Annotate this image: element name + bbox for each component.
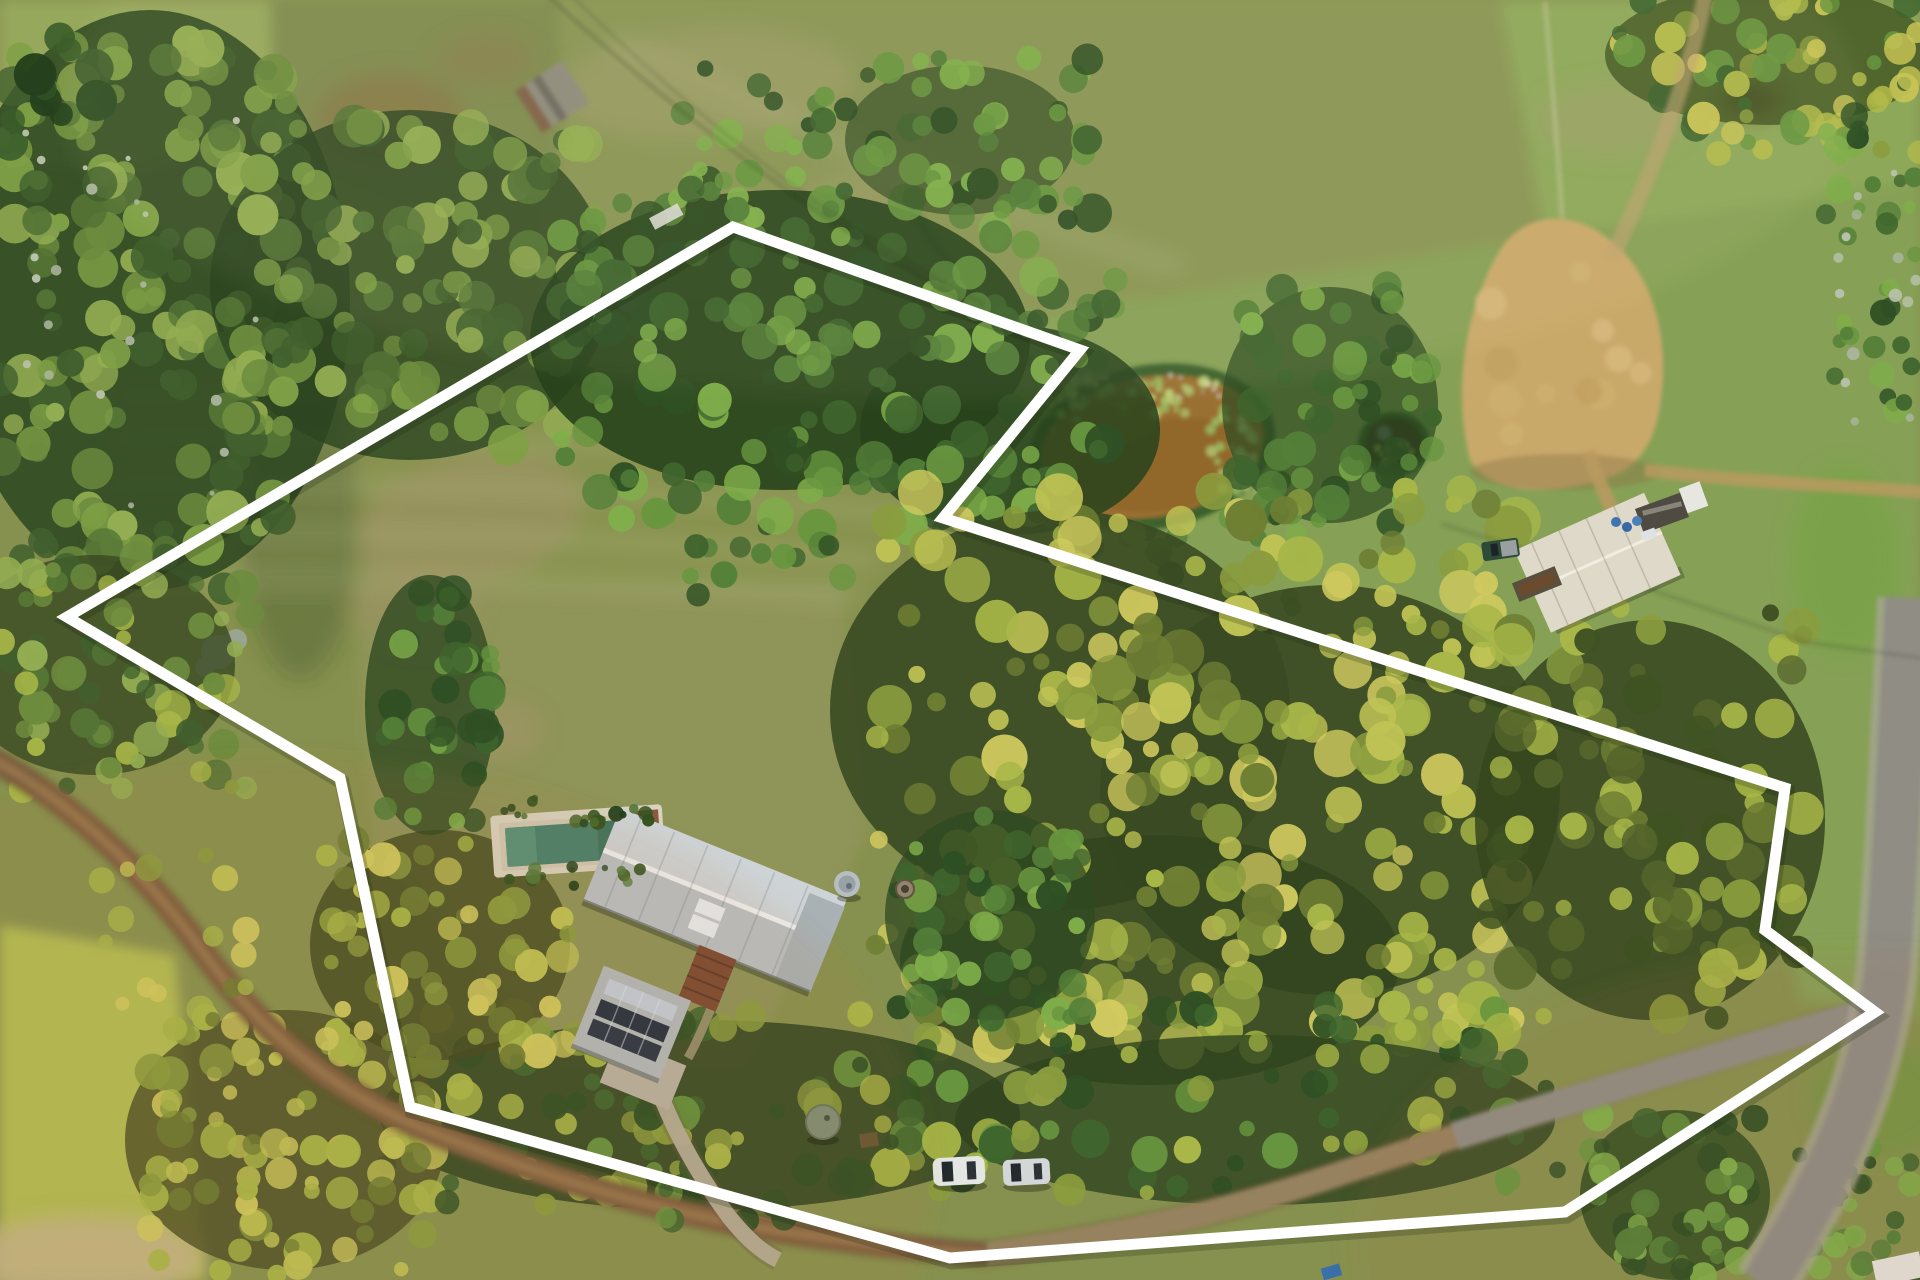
tree-canopy — [1174, 407, 1180, 413]
tree-canopy — [620, 469, 638, 487]
tree-canopy — [1265, 700, 1290, 725]
tree-canopy — [1865, 176, 1881, 192]
tree-canopy — [1902, 296, 1913, 307]
tree-canopy — [1188, 1075, 1214, 1101]
tree-canopy — [1574, 628, 1599, 653]
tree-canopy — [1406, 615, 1426, 635]
tree-canopy — [70, 564, 96, 590]
tree-canopy — [1358, 400, 1380, 422]
tree-canopy — [1622, 824, 1658, 860]
tree-canopy — [1847, 347, 1860, 360]
tree-canopy — [898, 604, 921, 627]
tree-canopy — [1365, 828, 1396, 859]
tree-canopy — [905, 984, 938, 1017]
tree-canopy — [1148, 938, 1176, 966]
tree-canopy — [1318, 1108, 1339, 1129]
tree-canopy — [1056, 624, 1084, 652]
tree-canopy — [281, 334, 310, 363]
tree-canopy — [1869, 362, 1895, 388]
tree-canopy — [898, 470, 943, 515]
tree-canopy — [984, 952, 1014, 982]
tree-canopy — [1281, 854, 1298, 871]
tree-canopy — [1755, 699, 1795, 739]
tree-canopy — [1117, 954, 1135, 972]
tree-canopy — [44, 23, 75, 54]
tree-canopy — [822, 400, 856, 434]
tree-canopy — [86, 184, 97, 195]
tree-canopy — [1467, 960, 1484, 977]
tree-canopy — [870, 831, 888, 849]
tree-canopy — [1062, 1009, 1078, 1025]
tree-canopy — [1876, 212, 1898, 234]
tree-canopy — [37, 156, 46, 165]
tree-canopy — [1394, 1019, 1416, 1041]
tree-canopy — [1706, 823, 1744, 861]
tree-canopy — [1264, 1068, 1280, 1084]
tree-canopy — [1352, 384, 1368, 400]
tree-canopy — [942, 998, 970, 1026]
tree-canopy — [1006, 658, 1025, 677]
tree-canopy — [1264, 439, 1296, 471]
tree-canopy — [14, 53, 57, 96]
tree-canopy — [1291, 467, 1313, 489]
fire-pit-center — [901, 885, 909, 893]
tree-canopy — [1392, 845, 1412, 865]
tree-canopy — [70, 708, 99, 737]
tree-canopy — [272, 416, 293, 437]
tree-canopy — [1896, 394, 1913, 411]
tree-canopy — [1505, 815, 1534, 844]
tree-canopy — [1022, 446, 1040, 464]
tree-canopy — [17, 640, 48, 671]
tree-canopy — [1494, 946, 1538, 990]
tree-canopy — [45, 562, 60, 577]
tree-canopy — [1872, 86, 1893, 107]
tree-canopy — [1191, 803, 1208, 820]
tree-canopy — [1212, 909, 1240, 937]
tree-canopy — [1206, 425, 1216, 435]
tree-canopy — [1178, 396, 1180, 398]
tree-canopy — [1090, 999, 1128, 1037]
tree-canopy — [1121, 702, 1160, 741]
tree-canopy — [979, 1006, 1004, 1031]
tree-canopy — [1238, 743, 1259, 764]
tree-canopy — [1484, 346, 1519, 381]
tree-canopy — [1329, 1015, 1357, 1043]
tree-canopy — [1903, 357, 1920, 375]
tree-canopy — [1420, 871, 1448, 899]
tree-canopy — [1548, 915, 1584, 951]
tree-canopy — [1325, 787, 1362, 824]
tree-canopy — [1160, 403, 1169, 412]
tree-canopy — [22, 130, 29, 137]
tree-canopy — [970, 682, 996, 708]
tree-canopy — [516, 390, 549, 423]
tree-canopy — [1378, 991, 1410, 1023]
tree-canopy — [1684, 716, 1715, 747]
tree-canopy — [134, 722, 169, 757]
tree-canopy — [220, 448, 229, 457]
tree-canopy — [1089, 803, 1109, 823]
tree-canopy — [1630, 362, 1652, 384]
tree-canopy — [684, 534, 708, 558]
tree-canopy — [642, 814, 654, 826]
tree-canopy — [214, 611, 229, 626]
tree-canopy — [1034, 1066, 1067, 1099]
tree-canopy — [1109, 514, 1128, 533]
tree-canopy — [416, 604, 435, 623]
tree-canopy — [51, 265, 62, 276]
tree-canopy — [1067, 662, 1093, 688]
tree-canopy — [572, 416, 603, 447]
tree-canopy — [1622, 675, 1662, 715]
tree-canopy — [866, 726, 889, 749]
tree-canopy — [1867, 55, 1882, 70]
tree-canopy — [30, 253, 38, 261]
tree-canopy — [1185, 556, 1205, 576]
tree-canopy — [1605, 345, 1632, 372]
tree-canopy — [40, 702, 60, 722]
tree-canopy — [1816, 204, 1836, 224]
tree-canopy — [1217, 394, 1220, 397]
tree-canopy — [608, 505, 635, 532]
tree-canopy — [215, 297, 245, 327]
tree-canopy — [425, 716, 456, 747]
tree-canopy — [1699, 877, 1724, 902]
tree-canopy — [1574, 377, 1602, 405]
tree-canopy — [1262, 1133, 1298, 1169]
tree-canopy — [363, 351, 401, 389]
tree-canopy — [18, 591, 34, 607]
tree-canopy — [1893, 252, 1904, 263]
tree-canopy — [1536, 385, 1555, 404]
tree-canopy — [942, 851, 966, 875]
tree-canopy — [1140, 1185, 1155, 1200]
tree-canopy — [382, 717, 405, 740]
tree-canopy — [970, 912, 1000, 942]
tree-canopy — [1666, 842, 1699, 875]
tree-canopy — [1474, 571, 1498, 595]
tree-canopy — [1038, 686, 1059, 707]
tree-canopy — [1422, 408, 1442, 428]
tree-canopy — [1489, 385, 1522, 418]
tree-canopy — [315, 365, 347, 397]
tree-canopy — [1219, 837, 1242, 860]
tree-canopy — [176, 719, 203, 746]
tree-canopy — [988, 710, 1009, 731]
tree-canopy — [1310, 920, 1344, 954]
tree-canopy — [1854, 192, 1862, 200]
tree-canopy — [668, 480, 702, 514]
tree-canopy — [724, 465, 760, 501]
tree-canopy — [1131, 1136, 1167, 1172]
tree-canopy — [1636, 615, 1666, 645]
tree-canopy — [1904, 201, 1916, 213]
tree-canopy — [1202, 804, 1242, 844]
tree-canopy — [73, 227, 106, 260]
tree-canopy — [1591, 319, 1614, 342]
tree-canopy — [400, 361, 440, 401]
tree-canopy — [556, 447, 576, 467]
tree-canopy — [682, 568, 699, 585]
parked-car-white — [932, 1156, 985, 1187]
tree-canopy — [1438, 992, 1459, 1013]
tree-canopy — [46, 403, 65, 422]
tree-canopy — [908, 666, 925, 683]
tree-canopy — [1477, 899, 1508, 930]
tree-canopy — [1432, 1019, 1461, 1048]
tree-canopy — [1242, 884, 1285, 927]
tree-canopy — [1419, 437, 1444, 462]
tree-canopy — [984, 884, 1014, 914]
tree-canopy — [730, 537, 751, 558]
tree-canopy — [711, 561, 738, 588]
tree-canopy — [1323, 1136, 1340, 1153]
tree-canopy — [389, 630, 418, 659]
tree-canopy — [51, 214, 69, 232]
tree-canopy — [176, 444, 211, 479]
tree-canopy — [1167, 867, 1185, 885]
tree-canopy — [629, 804, 639, 814]
tree-canopy — [1374, 585, 1396, 607]
tree-canopy — [686, 583, 709, 606]
tree-canopy — [751, 543, 771, 563]
tree-canopy — [1783, 608, 1820, 645]
tree-canopy — [1222, 939, 1250, 967]
tree-canopy — [1065, 830, 1084, 849]
tree-canopy — [488, 425, 529, 466]
tree-canopy — [1354, 617, 1374, 637]
tree-canopy — [268, 376, 298, 406]
tree-canopy — [867, 685, 912, 730]
tree-canopy — [166, 369, 197, 400]
hay-mound-shadow — [1470, 454, 1660, 490]
pickup-truck-tray — [1500, 540, 1518, 557]
tree-canopy — [18, 559, 48, 589]
tree-canopy — [1873, 141, 1890, 158]
tree-canopy — [208, 729, 239, 760]
tree-canopy — [1842, 232, 1851, 241]
tree-canopy — [1059, 969, 1087, 997]
tree-canopy — [1033, 654, 1049, 670]
tree-canopy — [203, 673, 226, 696]
tree-canopy — [1777, 655, 1806, 684]
tree-canopy — [22, 206, 52, 236]
tree-canopy — [1202, 391, 1204, 393]
tree-canopy — [140, 281, 146, 287]
tree-canopy — [345, 395, 378, 428]
tree-canopy — [927, 693, 946, 712]
tree-canopy — [19, 170, 52, 203]
tree-canopy — [582, 474, 618, 510]
tree-canopy — [1841, 378, 1850, 387]
tree-canopy — [1889, 289, 1902, 302]
tree-canopy — [876, 538, 901, 563]
tree-canopy — [1085, 703, 1124, 742]
tree-canopy — [1194, 1004, 1217, 1027]
tree-canopy — [1852, 210, 1862, 220]
tree-canopy — [1906, 414, 1914, 422]
tree-canopy — [1892, 336, 1910, 354]
tree-canopy — [96, 390, 105, 399]
car-windshield — [941, 1161, 953, 1182]
tree-canopy — [1701, 909, 1723, 931]
tree-canopy — [481, 645, 499, 663]
tree-canopy — [1624, 935, 1651, 962]
tree-canopy — [904, 783, 936, 815]
tree-canopy — [85, 300, 121, 336]
tree-canopy — [16, 720, 34, 738]
tree-canopy — [979, 1126, 1017, 1164]
tree-canopy — [1653, 886, 1693, 926]
tree-canopy — [188, 613, 214, 639]
tree-canopy — [1397, 760, 1413, 776]
tree-canopy — [1851, 417, 1859, 425]
tree-canopy — [1314, 485, 1350, 521]
tree-canopy — [28, 528, 55, 555]
blue-barrel — [1622, 522, 1632, 532]
tree-canopy — [1180, 409, 1189, 418]
aerial-property-photo — [0, 0, 1920, 1280]
tree-canopy — [1146, 869, 1164, 887]
tree-canopy — [131, 236, 174, 279]
tree-canopy — [974, 807, 993, 826]
tree-canopy — [432, 676, 460, 704]
tree-canopy — [1107, 817, 1126, 836]
satellite-dish-feed — [846, 883, 852, 889]
tree-canopy — [1240, 763, 1274, 797]
tree-canopy — [741, 439, 766, 464]
tree-canopy — [1054, 859, 1078, 883]
tree-canopy — [1891, 170, 1898, 177]
tree-canopy — [871, 504, 906, 539]
tree-canopy — [1490, 623, 1534, 667]
tree-canopy — [1126, 633, 1173, 680]
tree-canopy — [945, 557, 991, 603]
tree-canopy — [1126, 772, 1160, 806]
tree-canopy — [1143, 741, 1159, 757]
tree-canopy — [1431, 620, 1450, 639]
tree-canopy — [1380, 531, 1405, 556]
tree-canopy — [211, 395, 222, 406]
tree-canopy — [1366, 721, 1406, 761]
tree-canopy — [856, 441, 893, 478]
tree-canopy — [916, 1039, 938, 1061]
tree-canopy — [210, 491, 215, 496]
tree-canopy — [1214, 458, 1221, 465]
tree-canopy — [1373, 862, 1402, 891]
tree-canopy — [829, 564, 856, 591]
tree-canopy — [1089, 440, 1108, 459]
tree-canopy — [1424, 811, 1446, 833]
tree-canopy — [1835, 289, 1844, 298]
tree-canopy — [1071, 1120, 1110, 1159]
tree-canopy — [1441, 784, 1476, 819]
tree-canopy — [1840, 327, 1854, 341]
tree-canopy — [1833, 253, 1843, 263]
tree-canopy — [1219, 700, 1263, 744]
tree-canopy — [44, 370, 54, 380]
tree-canopy — [909, 841, 923, 855]
tree-canopy — [1777, 884, 1807, 914]
tree-canopy — [1032, 847, 1054, 869]
tree-canopy — [253, 317, 259, 323]
tree-canopy — [72, 448, 114, 490]
tree-canopy — [800, 411, 817, 428]
car-windshield — [1011, 1163, 1022, 1181]
tree-canopy — [79, 682, 101, 704]
tree-canopy — [236, 600, 264, 628]
tree-canopy — [1609, 887, 1632, 910]
tree-canopy — [1301, 1071, 1329, 1099]
tree-canopy — [32, 274, 41, 283]
tree-canopy — [1434, 948, 1457, 971]
tree-canopy — [1534, 759, 1563, 788]
tree-canopy — [1863, 336, 1886, 359]
tree-canopy — [773, 437, 811, 475]
tree-canopy — [222, 402, 255, 435]
tree-canopy — [1417, 978, 1433, 994]
tree-canopy — [936, 1070, 969, 1103]
tree-canopy — [1472, 490, 1501, 519]
tree-canopy — [1393, 493, 1426, 526]
tree-canopy — [439, 642, 473, 676]
aerial-photo-viewport — [0, 0, 1920, 1280]
tree-canopy — [1340, 445, 1371, 476]
tree-canopy — [1053, 1174, 1085, 1206]
tree-canopy — [1214, 860, 1246, 892]
tree-canopy — [1003, 1071, 1037, 1105]
tree-canopy — [1239, 1121, 1255, 1137]
tree-canopy — [1068, 917, 1085, 934]
tree-canopy — [1270, 496, 1298, 524]
tree-canopy — [1125, 831, 1142, 848]
tree-canopy — [4, 414, 24, 434]
tree-canopy — [178, 493, 211, 526]
tree-canopy — [957, 962, 981, 986]
tree-canopy — [1414, 1006, 1429, 1021]
tree-canopy — [1400, 454, 1417, 471]
tree-canopy — [15, 671, 39, 695]
tree-canopy — [1170, 399, 1175, 404]
tree-canopy — [1556, 900, 1572, 916]
tree-canopy — [125, 336, 134, 345]
tree-canopy — [1147, 996, 1177, 1026]
car-rear-glass — [1034, 1163, 1043, 1179]
tree-canopy — [1166, 506, 1196, 536]
blue-barrel — [1632, 516, 1642, 526]
tree-canopy — [1305, 405, 1334, 434]
tree-canopy — [28, 441, 48, 461]
tree-canopy — [1022, 468, 1040, 486]
tree-canopy — [1003, 506, 1026, 529]
tree-canopy — [1011, 1124, 1039, 1152]
tree-canopy — [1447, 475, 1477, 505]
tree-canopy — [1322, 571, 1352, 601]
tree-canopy — [1227, 1155, 1244, 1172]
tree-canopy — [44, 320, 53, 329]
tree-canopy — [1551, 958, 1572, 979]
tree-canopy — [1036, 880, 1068, 912]
tree-canopy — [1360, 1044, 1389, 1073]
tree-canopy — [1249, 1033, 1268, 1052]
tree-canopy — [1316, 1044, 1340, 1068]
tree-canopy — [225, 570, 259, 604]
tree-canopy — [975, 600, 1018, 643]
tree-canopy — [1523, 901, 1544, 922]
tree-canopy — [1402, 395, 1418, 411]
tree-canopy — [1721, 702, 1747, 728]
